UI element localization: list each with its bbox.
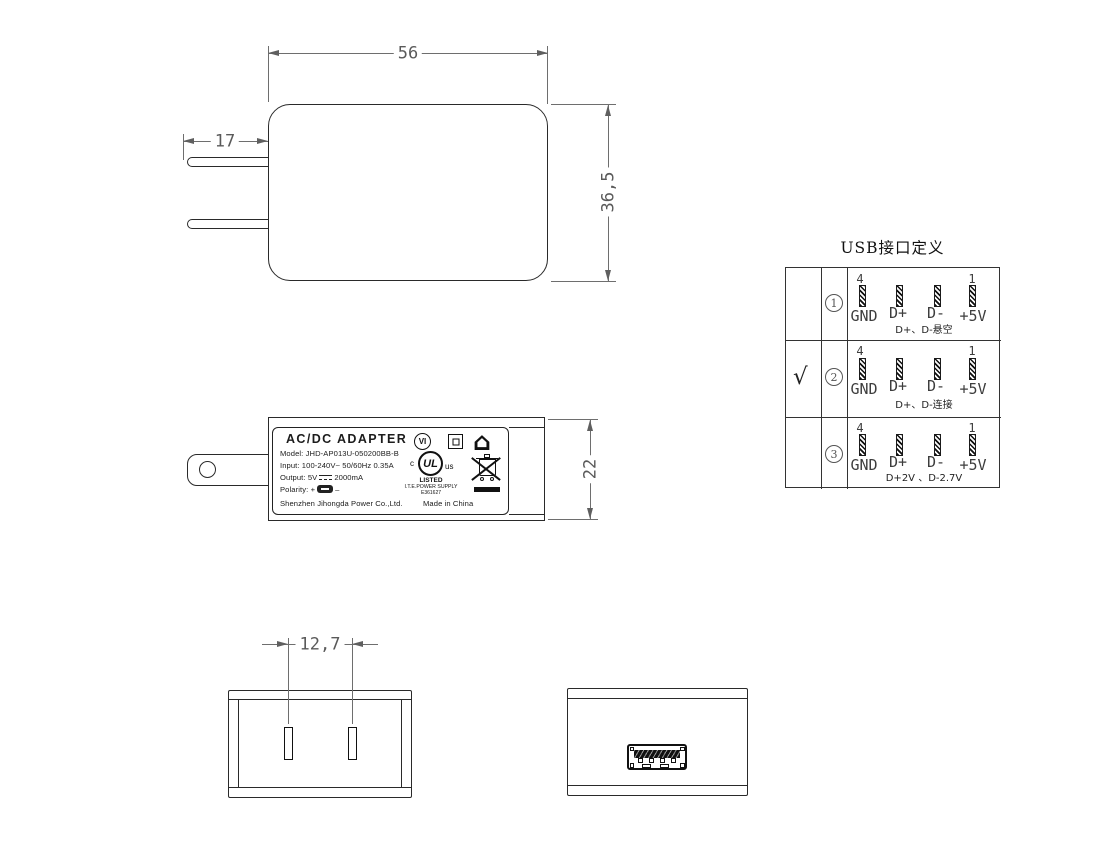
pin-label-5v: +5V [953,309,993,324]
indoor-use-icon: ⌂ [473,429,491,454]
efficiency-vi-text: VI [419,437,427,446]
class2-inner-square [452,438,459,445]
pin-number-1: 1 [964,273,980,285]
pin-label-dminus: D- [918,306,954,321]
table-row-line [786,340,1001,341]
row-note: D+、D-悬空 [847,326,1001,336]
weee-wheel-right [490,477,494,481]
case-edge-line [401,699,402,788]
selected-check-mark: √ [793,364,808,390]
dimension-prong-length: 17 [211,134,239,151]
dimension-prong-spacing: 12,7 [296,637,345,654]
usb-contact-pin [660,758,665,763]
usb-port-corner [630,763,635,768]
polarity-plus: + [311,485,316,494]
polarity-minus: – [335,485,339,494]
pin-label-dplus: D+ [880,306,916,321]
extension-line [352,638,353,724]
dimension-arrow [277,641,288,647]
pin-5v-icon [969,285,976,307]
dimension-side-height: 22 [583,455,600,483]
ul-c-text: c [410,459,414,468]
row-number-badge: 1 [825,294,843,312]
usb-key-notch [642,764,651,768]
pin-label-dplus: D+ [880,379,916,394]
pin-label-5v: +5V [953,458,993,473]
adapter-technical-drawing: 56 17 36,5 AC/DC ADAPTER Model: JHD-AP01… [0,0,1100,861]
dimension-arrow [587,508,593,519]
dimension-arrow [257,138,268,144]
row-note: D+、D-连接 [847,401,1001,411]
usb-port [627,744,687,770]
pin-label-gnd: GND [844,309,884,324]
pin-label-dminus: D- [918,379,954,394]
dc-voltage-icon [319,474,332,481]
prong-slot-left [284,727,293,760]
label-output: Output: 5V2000mA [280,473,363,482]
extension-line [548,519,598,520]
usb-contact-pin [638,758,643,763]
extension-line [551,281,616,282]
weee-wheel-left [480,477,484,481]
case-edge-line [229,787,411,788]
pin-number-4: 4 [852,345,868,357]
plug-face-outline [228,690,412,798]
case-edge-line [568,785,747,786]
label-title: AC/DC ADAPTER [286,432,407,446]
label-polarity-prefix: Polarity: [280,485,308,494]
case-edge-line [568,698,747,699]
case-edge-line [509,427,545,428]
extension-line [288,638,289,724]
pin-number-4: 4 [852,273,868,285]
usb-table-title: USB接口定义 [785,236,1000,258]
usb-definition-table: 1 4 1 GND D+ D- +5V D+、D-悬空 √ 2 4 1 GND … [785,267,1000,488]
dimension-arrow [605,105,611,116]
usb-face-outline [567,688,748,796]
label-output-prefix: Output: 5V [280,473,317,482]
ul-mark-text: UL [423,458,438,470]
dimension-arrow [587,420,593,431]
dimension-arrow [268,50,279,56]
label-input: Input: 100-240V~ 50/60Hz 0.35A [280,461,394,470]
row-note: D+2V 、D-2.7V [847,474,1001,484]
prong-slot-right [348,727,357,760]
usb-key-notch [660,764,669,768]
row-number-badge: 2 [825,368,843,386]
ul-mark-icon: UL [418,451,443,476]
dimension-arrow [605,270,611,281]
table-row-line [786,417,1001,418]
usb-plug-icon [317,485,333,493]
pin-5v-icon [969,434,976,456]
table-column-line [847,268,848,489]
pin-gnd-icon [859,285,866,307]
pin-number-4: 4 [852,422,868,434]
case-edge-line [229,699,411,700]
ul-listed-text: LISTED [411,477,451,484]
efficiency-vi-icon: VI [414,433,431,450]
class2-insulation-icon [448,434,463,449]
pin-label-5v: +5V [953,382,993,397]
dimension-arrow [537,50,548,56]
pin-label-dplus: D+ [880,455,916,470]
table-column-line [821,268,822,489]
usb-port-corner [680,747,685,752]
weee-bin-icon [470,454,504,496]
weee-black-bar [474,487,500,492]
dimension-body-height: 36,5 [601,168,618,217]
label-output-value: 2000mA [334,473,363,482]
pin-gnd-icon [859,434,866,456]
plug-prong-upper [187,157,269,167]
label-company: Shenzhen Jihongda Power Co.,Ltd. [280,499,403,508]
adapter-body-outline [268,104,548,281]
pin-gnd-icon [859,358,866,380]
pin-label-gnd: GND [844,458,884,473]
usb-contact-pin [671,758,676,763]
dimension-arrow [352,641,363,647]
label-model: Model: JHD-AP013U-050200BB-B [280,449,399,458]
label-polarity: Polarity: +– [280,485,339,494]
usb-port-corner [680,763,685,768]
pin-label-gnd: GND [844,382,884,397]
ul-file-text: E361627 [411,490,451,496]
plug-prong-lower [187,219,269,229]
pin-label-dminus: D- [918,455,954,470]
row-number-badge: 3 [825,445,843,463]
rating-label: AC/DC ADAPTER Model: JHD-AP013U-050200BB… [272,427,509,515]
dimension-body-width: 56 [394,46,422,63]
prong-hole [199,461,216,478]
pin-number-1: 1 [964,422,980,434]
label-origin: Made in China [423,499,473,508]
ul-us-text: us [445,462,453,471]
pin-5v-icon [969,358,976,380]
usb-contact-pin [649,758,654,763]
pin-number-1: 1 [964,345,980,357]
dimension-arrow [183,138,194,144]
case-edge-line [509,514,545,515]
case-edge-line [238,699,239,788]
